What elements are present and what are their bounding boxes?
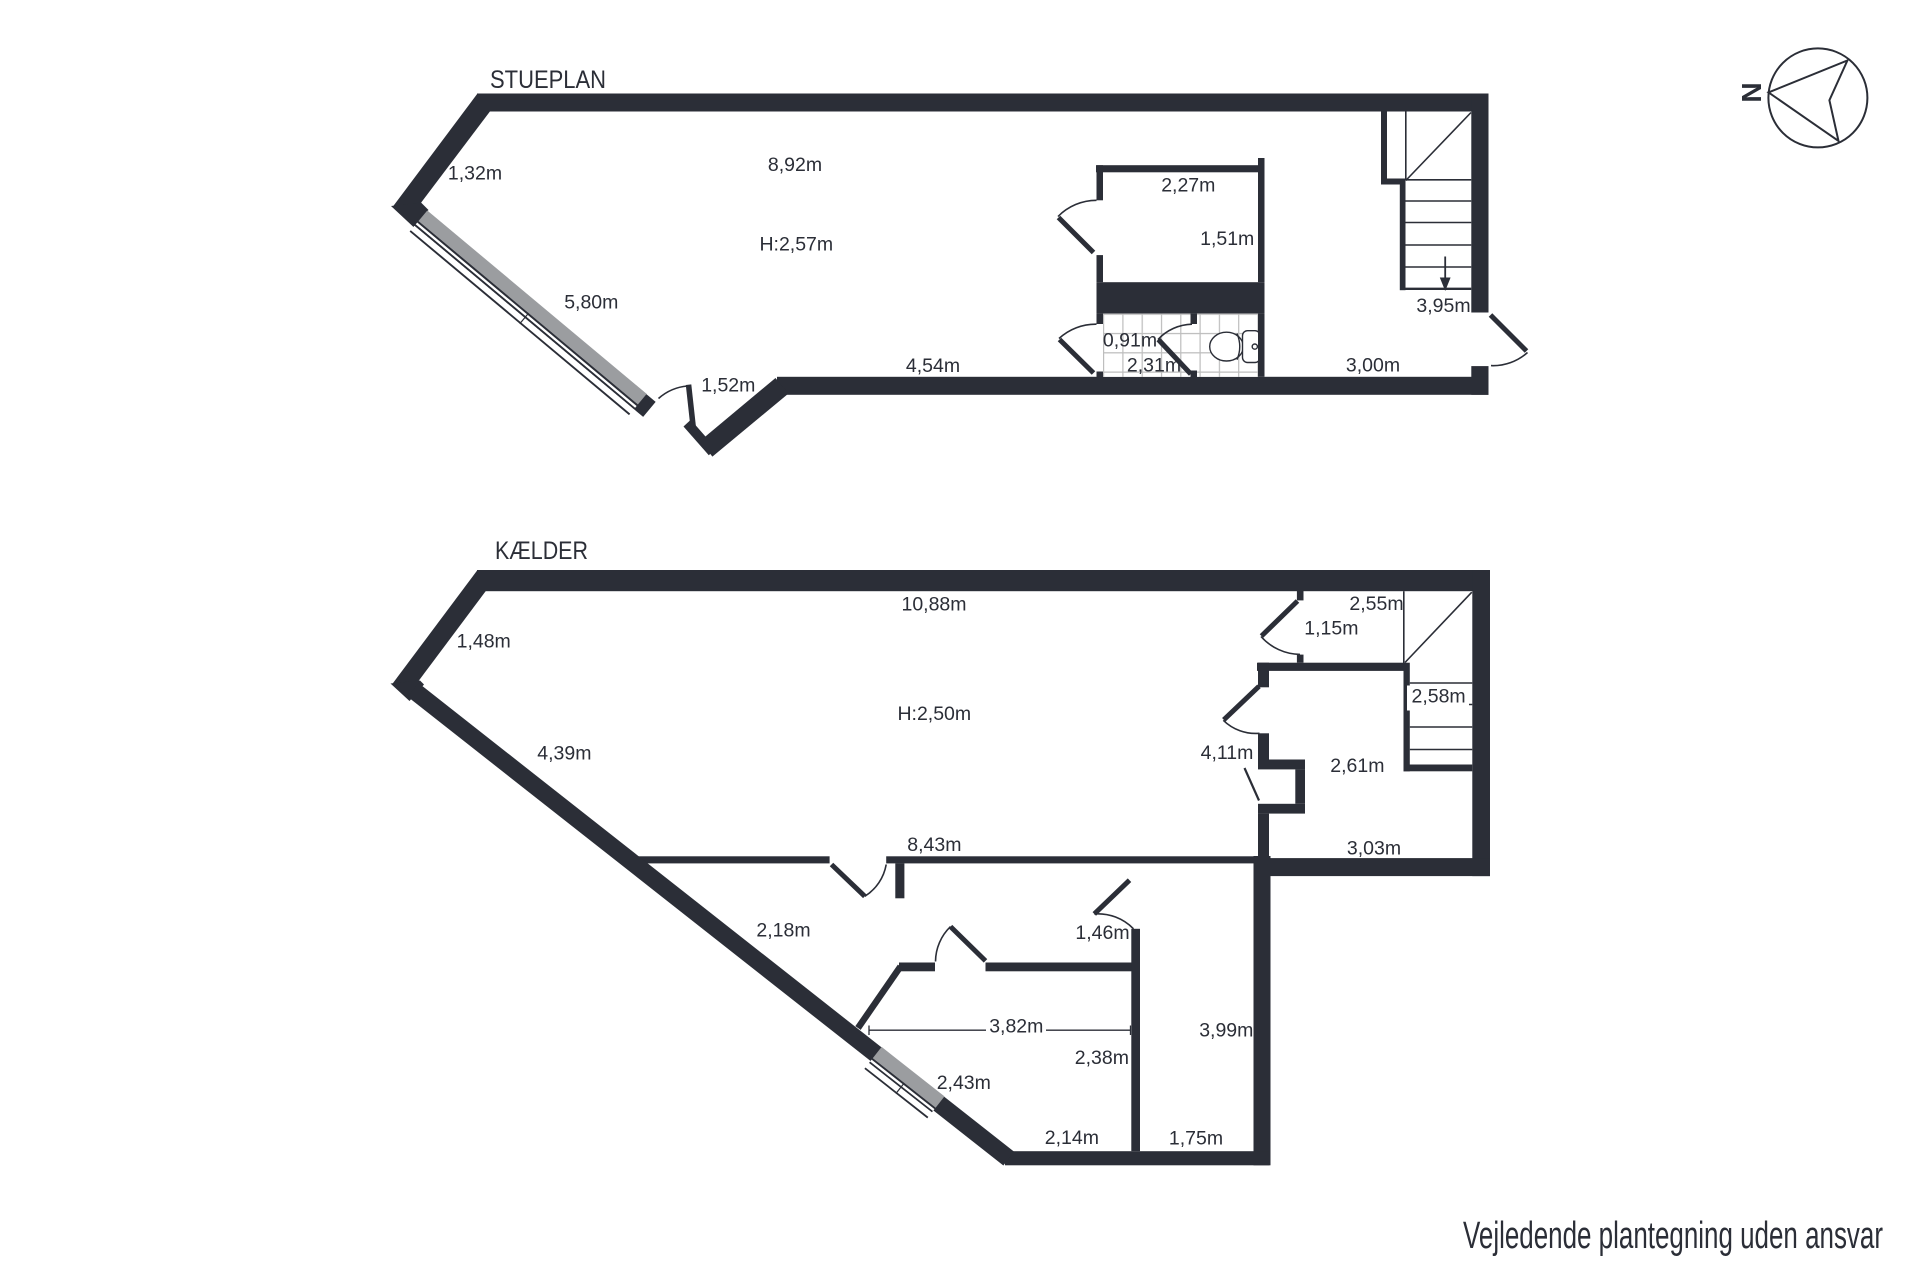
svg-text:2,43m: 2,43m: [937, 1072, 991, 1094]
svg-text:1,48m: 1,48m: [457, 630, 511, 652]
svg-text:KÆLDER: KÆLDER: [495, 537, 588, 565]
svg-text:10,88m: 10,88m: [901, 594, 966, 616]
svg-text:3,99m: 3,99m: [1199, 1019, 1253, 1041]
svg-text:1,46m: 1,46m: [1075, 922, 1129, 944]
svg-text:4,11m: 4,11m: [1201, 742, 1254, 764]
svg-text:1,15m: 1,15m: [1304, 617, 1358, 639]
svg-text:4,54m: 4,54m: [906, 355, 960, 377]
svg-text:2,55m: 2,55m: [1349, 593, 1403, 615]
svg-text:3,03m: 3,03m: [1347, 837, 1401, 859]
svg-text:2,31m: 2,31m: [1127, 355, 1181, 377]
svg-text:1,75m: 1,75m: [1169, 1128, 1223, 1150]
svg-text:5,80m: 5,80m: [564, 291, 618, 313]
svg-text:2,61m: 2,61m: [1330, 755, 1384, 777]
svg-text:2,14m: 2,14m: [1045, 1127, 1099, 1149]
svg-text:STUEPLAN: STUEPLAN: [490, 66, 606, 94]
svg-text:1,51m: 1,51m: [1200, 228, 1254, 250]
svg-text:H:2,50m: H:2,50m: [897, 703, 971, 725]
svg-text:0,91m: 0,91m: [1103, 329, 1157, 351]
svg-text:3,00m: 3,00m: [1346, 355, 1400, 377]
svg-text:2,38m: 2,38m: [1075, 1047, 1129, 1069]
svg-text:2,27m: 2,27m: [1161, 174, 1215, 196]
svg-text:3,82m: 3,82m: [989, 1016, 1043, 1038]
svg-text:2,58m: 2,58m: [1411, 686, 1465, 708]
svg-text:2,18m: 2,18m: [756, 919, 810, 941]
svg-text:1,32m: 1,32m: [448, 163, 502, 185]
svg-text:4,39m: 4,39m: [537, 742, 591, 764]
svg-text:Vejledende plantegning uden an: Vejledende plantegning uden ansvar: [1463, 1215, 1883, 1257]
svg-text:1,52m: 1,52m: [701, 374, 755, 396]
svg-text:H:2,57m: H:2,57m: [759, 234, 833, 256]
svg-text:N: N: [1736, 82, 1767, 102]
svg-text:8,43m: 8,43m: [907, 834, 961, 856]
svg-text:3,95m: 3,95m: [1416, 295, 1470, 317]
svg-text:8,92m: 8,92m: [768, 154, 822, 176]
